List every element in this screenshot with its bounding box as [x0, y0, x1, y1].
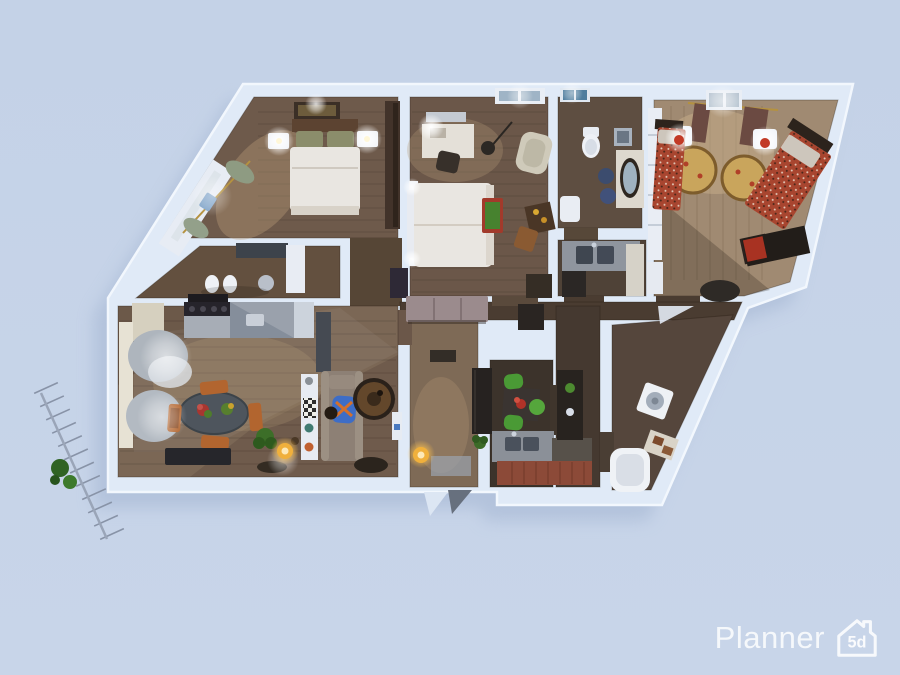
logo-5d-text: 5d: [847, 634, 866, 652]
corridor-coat-cabinet: [518, 304, 544, 330]
glow-middle-bedpost-bottom: [403, 250, 421, 268]
master-bed-duvet: [290, 147, 360, 211]
middle-dresser: [526, 274, 552, 298]
balcony-plant-3: [50, 475, 60, 485]
master-pillow-left: [296, 131, 323, 148]
kitchen-counter-ext: [552, 438, 592, 464]
watermark-logo: Planner 5d: [715, 615, 880, 661]
kitchen-cabinets-brick: [497, 461, 592, 485]
glow-middle-window: [507, 83, 533, 109]
master-bed-foot: [291, 206, 359, 215]
living-shelf-pot-orange: [305, 443, 314, 452]
living-kitchen-unit-white: [294, 302, 314, 338]
entry-plant-leaf-2: [480, 436, 488, 444]
living-plant-big-leaf-1: [253, 437, 265, 449]
wc-corner-sink: [560, 196, 580, 222]
entry-doormat: [431, 456, 471, 476]
living-table-plant-yellow: [228, 403, 234, 409]
entry-bench: [430, 350, 456, 362]
living-bench-sofa: [165, 448, 231, 465]
entry-yellow-lamp-hot: [418, 452, 425, 459]
glow-kids-window: [706, 84, 740, 118]
glow-master-art-light: [305, 93, 327, 115]
person-head: [325, 407, 338, 420]
closet-counter: [236, 243, 288, 258]
kids-rug-1-dot-b: [698, 174, 703, 179]
living-round-rug: [354, 457, 388, 473]
kids-rug-1-dot-a: [684, 162, 689, 167]
middle-floor-lamp-head: [481, 141, 495, 155]
balcony-plant-2: [63, 475, 77, 489]
floorplan-scene: [0, 0, 900, 675]
living-chair-right: [248, 402, 263, 431]
living-shelf-pot-teal: [305, 424, 314, 433]
planner5d-house-icon: 5d: [834, 615, 880, 661]
corridor-sideboard: [406, 296, 488, 322]
kids-dresser: [647, 262, 663, 294]
living-sofa-cushion: [329, 375, 355, 389]
middle-table-decor-2: [541, 217, 547, 223]
middle-bed-headboard: [407, 190, 414, 258]
master-headboard: [292, 119, 358, 132]
living-tall-cabinet: [316, 312, 331, 372]
wc-stool-1: [598, 168, 614, 184]
inner-corridor-vase: [566, 408, 574, 416]
living-burner-1: [189, 306, 195, 312]
living-burner-4: [221, 306, 227, 312]
kitchen-chair-1: [503, 373, 523, 390]
utility-faucet: [592, 243, 597, 248]
master-lamp-left-hot: [276, 138, 282, 144]
kids-lamp-right-ball: [760, 138, 770, 148]
wc-mirror-glass: [623, 162, 637, 194]
living-kitchen-sink: [246, 314, 264, 326]
utility-oven: [562, 271, 586, 297]
master-pillow-right: [327, 131, 354, 148]
inner-corridor-plant: [565, 383, 575, 393]
living-burner-2: [200, 306, 206, 312]
master-lamp-right-hot: [364, 136, 370, 142]
living-table-flowers-red-hi: [197, 404, 203, 410]
living-coffee-table-decor: [377, 390, 383, 396]
glow-wc-window: [561, 82, 583, 104]
glow-master-window: [192, 176, 232, 216]
living-counter-a: [184, 316, 230, 338]
living-radiator-valve: [394, 424, 400, 430]
corridor-sideboard-shadow: [408, 320, 486, 324]
middle-rug-center: [485, 202, 500, 229]
kids-lamp-left-ball: [674, 135, 684, 145]
balcony-plant-1: [51, 459, 69, 477]
kitchen-faucet: [512, 432, 517, 437]
hall-cabinet-dark: [390, 268, 408, 298]
master-wardrobe-edge: [393, 103, 398, 227]
living-chair-bottom: [200, 435, 229, 450]
utility-sink-basin-2: [597, 246, 614, 264]
glow-middle-bedpost-top: [403, 178, 421, 196]
glow-middle-desk-lamp: [418, 114, 444, 140]
floorplan-render-canvas: Planner 5d: [0, 0, 900, 675]
kitchen-sink-basin-2: [523, 437, 539, 451]
inner-corridor-console: [557, 370, 583, 440]
kitchen-sink-basin-1: [505, 437, 521, 451]
living-shelf-pot-gray: [305, 377, 313, 385]
living-yellow-lamp-hot: [282, 448, 289, 455]
living-burner-3: [211, 306, 217, 312]
glow-living-window-2: [137, 392, 187, 442]
kids-rug-2-dot-a: [736, 170, 741, 175]
living-table-leaves: [204, 410, 212, 418]
kitchen-chair-2: [503, 414, 523, 431]
bath-tub-inner: [616, 454, 644, 486]
kids-rug-2-dot-b: [750, 182, 755, 187]
closet-cabinet: [286, 245, 305, 293]
wc-toilet-seat: [585, 139, 597, 155]
glow-living-window-1: [140, 331, 192, 383]
wc-stool-2: [600, 188, 616, 204]
utility-cabinet: [626, 244, 644, 296]
kids-beanbag: [700, 280, 740, 302]
utility-sink-basin-1: [576, 246, 593, 264]
wc-wall-art-inner: [617, 131, 629, 143]
bath-washer-door: [652, 398, 659, 405]
kitchen-table-flowers-hi: [514, 397, 520, 403]
entry-plant-leaf-1: [472, 435, 480, 443]
middle-table-decor-1: [533, 209, 539, 215]
watermark-brand-text: Planner: [715, 620, 825, 656]
living-shelf-checker: [303, 398, 316, 418]
kitchen-stool: [529, 399, 545, 415]
